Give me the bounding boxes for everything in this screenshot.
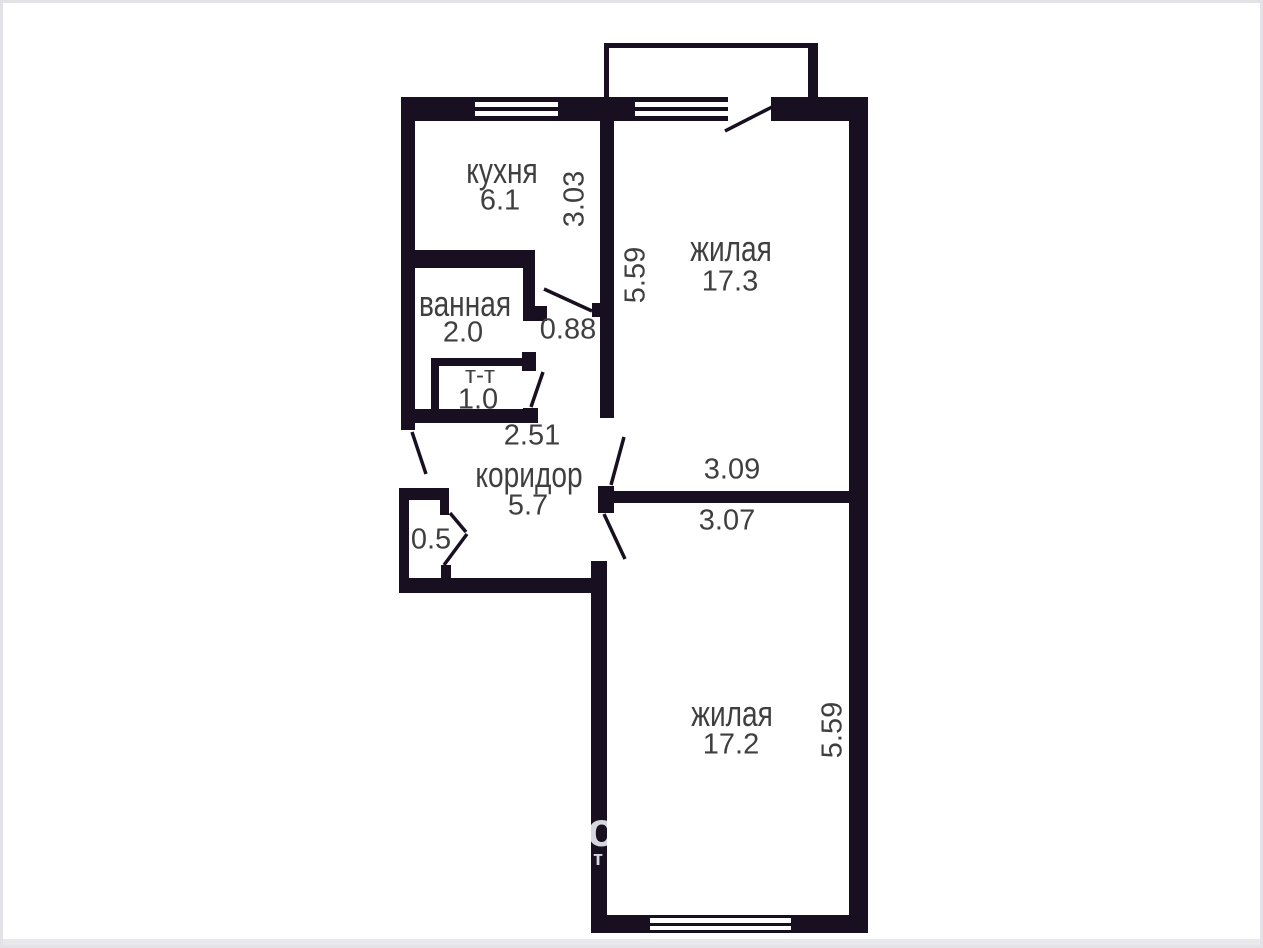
floor-plan: кухня 6.1 жилая 17.3 ванная 2.0 т-т 1.0 …: [0, 0, 1263, 948]
dim-label-bathroom-door: 0.88: [540, 316, 596, 345]
room-label-living1: жилая: [690, 231, 772, 267]
area-label-corridor: 5.7: [508, 492, 548, 521]
room-label-corridor: коридор: [475, 457, 582, 493]
entrance-door-swing: [412, 432, 426, 474]
dim-label-living2-height: 5.59: [819, 702, 848, 758]
dim-label-living1-height: 5.59: [622, 247, 651, 303]
area-label-toilet: 1.0: [458, 386, 498, 415]
door-swings: [3, 3, 1263, 948]
dim-label-living1-width: 3.09: [704, 456, 760, 485]
dim-label-corridor-width: 2.51: [504, 422, 560, 451]
dim-label-living2-width: 3.07: [699, 507, 755, 536]
area-label-closet: 0.5: [411, 526, 451, 555]
living2-door-swing: [604, 514, 625, 559]
area-label-living2: 17.2: [703, 731, 759, 760]
area-label-bathroom: 2.0: [443, 319, 483, 348]
watermark: о нт: [591, 561, 607, 933]
room-label-living2: жилая: [691, 696, 773, 732]
balcony-door-swing: [725, 107, 772, 131]
bottom-frame-band: [3, 939, 1260, 948]
area-label-living1: 17.3: [702, 268, 758, 297]
area-label-kitchen: 6.1: [480, 187, 520, 216]
living1-door-swing: [611, 437, 624, 485]
dim-label-kitchen-width: 3.03: [561, 171, 590, 227]
bathroom-door-swing: [544, 289, 592, 311]
closet-door-swing-a: [450, 513, 466, 532]
toilet-door-swing: [531, 372, 543, 407]
watermark-fragment-small: нт: [591, 849, 604, 869]
